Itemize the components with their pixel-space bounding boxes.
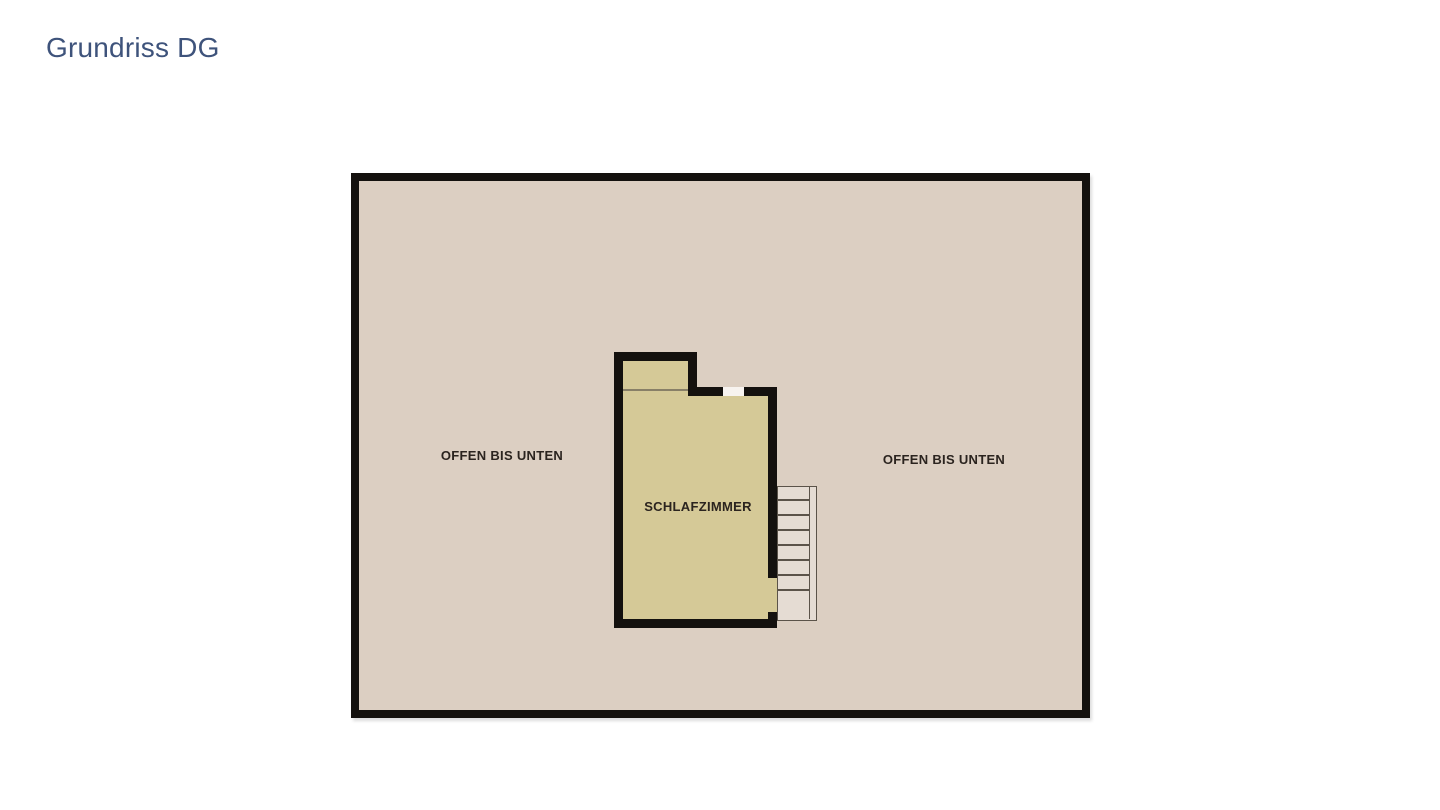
alcove-level-line — [623, 389, 688, 391]
label-schlafzimmer: SCHLAFZIMMER — [598, 499, 798, 515]
stair-tread — [778, 589, 809, 591]
page-title: Grundriss DG — [46, 32, 220, 64]
stair-tread — [778, 544, 809, 546]
bedroom-wall-bottom — [614, 619, 777, 628]
bedroom-alcove-fill — [623, 361, 688, 619]
bedroom-wall-right — [768, 387, 777, 578]
stair-rail-line — [809, 487, 811, 619]
label-offen-bis-unten-left: OFFEN BIS UNTEN — [402, 448, 602, 464]
bedroom-wall-step — [688, 387, 723, 396]
label-offen-bis-unten-right: OFFEN BIS UNTEN — [844, 452, 1044, 468]
bedroom-wall-top — [614, 352, 697, 361]
stair-tread — [778, 574, 809, 576]
stair-tread — [778, 529, 809, 531]
bedroom-wall-left — [614, 352, 623, 628]
stair-tread — [778, 559, 809, 561]
door-opening — [723, 387, 744, 396]
floor-plan: OFFEN BIS UNTEN OFFEN BIS UNTEN SCHLAFZI… — [351, 173, 1090, 718]
